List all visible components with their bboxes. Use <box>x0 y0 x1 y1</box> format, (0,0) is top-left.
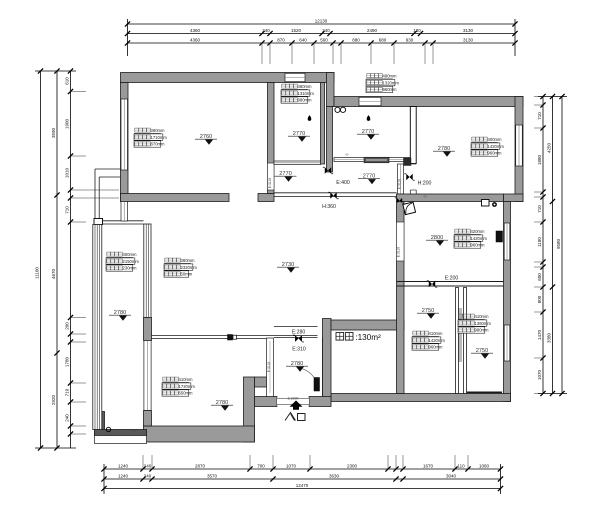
svg-text:E:310: E:310 <box>292 347 306 353</box>
svg-text:960mm: 960mm <box>488 151 502 156</box>
svg-text:E:3116: E:3116 <box>398 179 402 190</box>
svg-text:3130: 3130 <box>463 37 474 42</box>
svg-text:12470: 12470 <box>296 483 309 488</box>
svg-text:50mm: 50mm <box>181 272 193 277</box>
svg-text:1310mm: 1310mm <box>298 91 315 96</box>
svg-text:180: 180 <box>413 28 421 33</box>
svg-text:2320mm: 2320mm <box>181 265 198 270</box>
svg-text:240: 240 <box>144 463 152 468</box>
svg-text:4360: 4360 <box>190 37 201 42</box>
svg-text:980mm: 980mm <box>298 98 312 103</box>
svg-text:12130: 12130 <box>315 18 328 23</box>
svg-text:2150mm: 2150mm <box>123 259 140 264</box>
svg-text:2870: 2870 <box>195 463 206 468</box>
svg-text:230mm: 230mm <box>123 266 137 271</box>
svg-text:1240: 1240 <box>118 463 129 468</box>
svg-text:490mm: 490mm <box>383 73 397 78</box>
svg-text:410mm: 410mm <box>475 314 489 319</box>
svg-text:1180: 1180 <box>537 237 542 247</box>
svg-text:E:3116: E:3116 <box>267 362 271 373</box>
svg-text:2300: 2300 <box>347 463 358 468</box>
svg-text:640: 640 <box>299 37 307 42</box>
svg-text:4670: 4670 <box>51 268 56 279</box>
svg-text:E:3116: E:3116 <box>397 247 401 258</box>
svg-text:240: 240 <box>262 28 270 33</box>
svg-text:240: 240 <box>322 28 330 33</box>
svg-text:710: 710 <box>65 388 70 396</box>
svg-text:1420mm: 1420mm <box>429 338 446 343</box>
svg-text:650mm: 650mm <box>179 391 193 396</box>
svg-text:9580: 9580 <box>556 238 561 249</box>
svg-text:E:280: E:280 <box>292 330 306 336</box>
svg-text:3380: 3380 <box>547 332 552 343</box>
svg-text:3630: 3630 <box>329 473 340 478</box>
svg-text:-c-: -c- <box>345 152 350 157</box>
svg-text:870: 870 <box>277 37 285 42</box>
svg-text:960mm: 960mm <box>383 87 397 92</box>
svg-text:240: 240 <box>144 473 152 478</box>
svg-text:1900: 1900 <box>65 118 70 129</box>
svg-text:110: 110 <box>457 463 465 468</box>
svg-text:710: 710 <box>65 206 70 214</box>
svg-text:E:3116: E:3116 <box>268 178 272 189</box>
svg-text:980mm: 980mm <box>475 328 489 333</box>
svg-text:1470: 1470 <box>537 329 542 340</box>
svg-text:600: 600 <box>537 273 542 281</box>
svg-text:H:200: H:200 <box>418 181 432 187</box>
svg-text:960mm: 960mm <box>429 345 443 350</box>
svg-text:880: 880 <box>352 37 360 42</box>
svg-text:E:400: E:400 <box>336 180 350 186</box>
svg-text:1710mm: 1710mm <box>151 135 168 140</box>
svg-text:E:2200: E:2200 <box>288 397 299 401</box>
svg-text:1360mm: 1360mm <box>475 321 492 326</box>
svg-text:3130: 3130 <box>463 28 474 33</box>
svg-text:E:200: E:200 <box>445 276 459 282</box>
svg-text::130m²: :130m² <box>355 333 381 342</box>
svg-text:1060: 1060 <box>479 463 490 468</box>
svg-text:3040: 3040 <box>446 473 457 478</box>
svg-text:610: 610 <box>65 77 70 85</box>
svg-text:1070: 1070 <box>537 369 542 380</box>
svg-text:380mm: 380mm <box>151 128 165 133</box>
svg-text:3590: 3590 <box>51 127 56 138</box>
svg-text:410mm: 410mm <box>179 377 193 382</box>
svg-text:870mm: 870mm <box>151 142 165 147</box>
svg-text:1240: 1240 <box>118 473 129 478</box>
svg-text:700: 700 <box>257 463 265 468</box>
svg-text:960mm: 960mm <box>471 243 485 248</box>
svg-text:4250: 4250 <box>547 142 552 153</box>
svg-text:3570: 3570 <box>207 473 218 478</box>
svg-text:710: 710 <box>537 112 542 120</box>
svg-text:1520: 1520 <box>291 28 302 33</box>
svg-text:240: 240 <box>65 414 70 422</box>
svg-text:360mm: 360mm <box>181 258 195 263</box>
svg-text:930: 930 <box>406 37 414 42</box>
svg-text:1010: 1010 <box>65 167 70 178</box>
svg-text:710: 710 <box>537 205 542 213</box>
svg-text:1420mm: 1420mm <box>471 236 488 241</box>
svg-text:560: 560 <box>320 37 328 42</box>
svg-text:4360: 4360 <box>190 28 201 33</box>
svg-text:2920: 2920 <box>51 394 56 405</box>
svg-text:800: 800 <box>537 295 542 303</box>
svg-text:1880: 1880 <box>537 154 542 165</box>
svg-text:680: 680 <box>379 37 387 42</box>
svg-text:1420mm: 1420mm <box>488 144 505 149</box>
svg-text:1670: 1670 <box>423 463 434 468</box>
svg-text:1070: 1070 <box>286 463 297 468</box>
svg-text:480mm: 480mm <box>298 84 312 89</box>
svg-text:420mm: 420mm <box>471 229 485 234</box>
svg-text:-c-: -c- <box>132 428 137 433</box>
svg-text:H:360: H:360 <box>322 204 336 210</box>
svg-text:200: 200 <box>65 322 70 330</box>
svg-text:400mm: 400mm <box>488 137 502 142</box>
svg-text:1720mm: 1720mm <box>179 384 196 389</box>
svg-text:1320mm: 1320mm <box>383 80 400 85</box>
svg-text:2490: 2490 <box>367 28 378 33</box>
svg-text:1780: 1780 <box>65 356 70 367</box>
svg-text:11100: 11100 <box>35 267 40 279</box>
svg-text:410mm: 410mm <box>429 331 443 336</box>
svg-text:400mm: 400mm <box>123 252 137 257</box>
